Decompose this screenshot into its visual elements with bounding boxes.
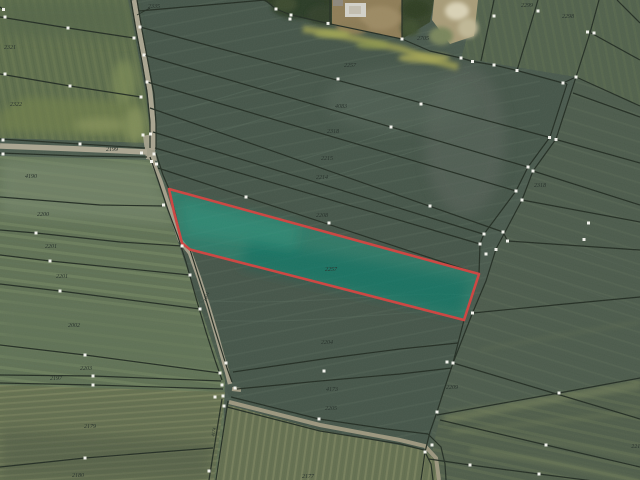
svg-text:2197: 2197 <box>50 376 63 382</box>
svg-text:2209: 2209 <box>446 385 458 391</box>
svg-text:2201: 2201 <box>56 274 68 280</box>
svg-text:2257: 2257 <box>344 63 357 69</box>
svg-text:2335: 2335 <box>148 4 160 10</box>
svg-text:2299: 2299 <box>521 3 533 9</box>
svg-text:2179: 2179 <box>84 424 96 430</box>
svg-text:2257: 2257 <box>325 267 338 273</box>
svg-text:2705: 2705 <box>417 36 429 42</box>
svg-text:2298: 2298 <box>562 14 574 20</box>
svg-text:2203: 2203 <box>80 366 92 372</box>
svg-text:2205: 2205 <box>325 406 337 412</box>
svg-text:2318: 2318 <box>327 129 339 135</box>
svg-text:2177: 2177 <box>302 474 315 480</box>
svg-text:2215: 2215 <box>321 156 333 162</box>
svg-text:2200: 2200 <box>37 212 49 218</box>
svg-text:2318: 2318 <box>534 183 546 189</box>
svg-text:2321: 2321 <box>4 45 16 51</box>
svg-text:4173: 4173 <box>326 386 338 393</box>
svg-text:2199: 2199 <box>106 147 118 153</box>
svg-text:2002: 2002 <box>68 323 80 329</box>
svg-text:2211: 2211 <box>631 444 640 450</box>
svg-text:2322: 2322 <box>10 102 22 108</box>
svg-text:2208: 2208 <box>316 213 328 219</box>
svg-text:2201: 2201 <box>45 244 57 250</box>
svg-text:2214: 2214 <box>316 174 328 181</box>
svg-text:2204: 2204 <box>321 339 333 346</box>
svg-text:4083: 4083 <box>335 103 347 110</box>
svg-text:2180: 2180 <box>72 473 84 479</box>
svg-text:4190: 4190 <box>25 173 37 180</box>
